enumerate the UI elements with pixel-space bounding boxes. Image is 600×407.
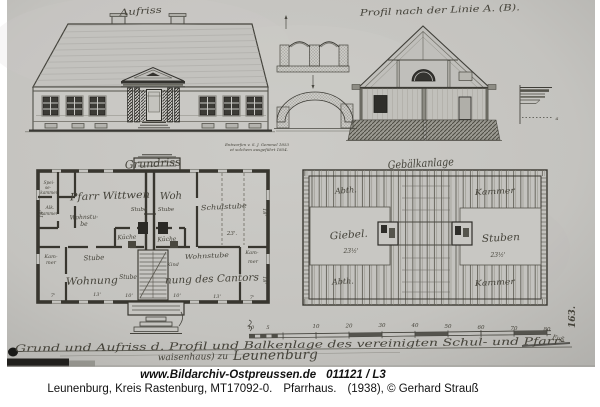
handwritten-text: 13' (213, 294, 221, 300)
archive-photo-page: AufrissEntworfen v. S. J. Gemmel 1853et … (0, 0, 600, 407)
archive-site-line: www.Bildarchiv-Ostpreussen.de011121 / L3 (0, 369, 526, 382)
handwritten-text: et solchem ausgeführt 1854. (230, 147, 288, 152)
handwritten-text: mer (248, 259, 259, 265)
handwritten-text: be (80, 221, 88, 228)
subject-text: Pfarrhaus. (283, 383, 336, 395)
handwritten-text: 50 (445, 324, 452, 330)
handwritten-text: 5 (266, 325, 269, 331)
handwritten-text: Stube (131, 207, 148, 213)
handwritten-text: Wohnung (66, 275, 118, 288)
handwritten-text: mer (46, 260, 57, 266)
handwritten-text: 7' (51, 293, 56, 299)
handwritten-text: Abth. (331, 276, 354, 286)
handwritten-text: 10' (125, 293, 133, 299)
handwritten-text: 23'. (226, 231, 238, 237)
handwritten-text: 7' (250, 295, 255, 301)
handwritten-text: Abth. (334, 185, 357, 196)
handwritten-text: 23½' (489, 252, 505, 259)
photo-meta-line: Leunenburg, Kreis Rastenburg, MT17092-0.… (0, 383, 526, 397)
handwritten-text: 80 (544, 327, 551, 333)
handwritten-text: Woh (160, 191, 182, 203)
handwritten-text: 18' (39, 210, 45, 218)
handwritten-text: kammer (40, 190, 58, 195)
handwritten-text: 30 (379, 323, 386, 329)
foundation-hatched (346, 120, 502, 141)
handwritten-text: 23½' (342, 248, 358, 255)
archive-site-url: www.Bildarchiv-Ostpreussen.de (140, 369, 316, 381)
handwritten-text: 70 (511, 326, 518, 332)
location-text: Leunenburg, Kreis Rastenburg, MT17092-0. (47, 383, 272, 395)
staircase (138, 250, 168, 300)
handwritten-text: Küche (156, 236, 177, 244)
handwritten-text: 163. (568, 306, 578, 328)
handwritten-text: 10' (173, 293, 181, 299)
handwritten-text: Kam- (244, 250, 258, 256)
handwritten-text: Leunenburg (232, 348, 318, 364)
handwritten-text: a (556, 116, 559, 122)
handwritten-text: 40 (411, 323, 419, 329)
handwritten-text: 18' (261, 276, 267, 284)
handwritten-text: Stube (119, 274, 137, 281)
image-id: 011121 / L3 (326, 369, 386, 381)
handwritten-text: 10 (313, 324, 320, 330)
handwritten-text: 60 (478, 325, 485, 331)
handwritten-text: 13' (93, 292, 101, 298)
handwritten-text: Kind (166, 262, 179, 268)
credit-text: (1938), © Gerhard Strauß (347, 383, 478, 395)
handwritten-text: 10 (248, 325, 255, 331)
handwritten-text: Stube (158, 207, 175, 213)
handwritten-text: Stube (83, 254, 104, 263)
archival-drawing-photo: AufrissEntworfen v. S. J. Gemmel 1853et … (0, 0, 600, 367)
handwritten-text: Küche (116, 234, 137, 242)
handwritten-text: Stuben (482, 232, 521, 245)
handwritten-text: 18' (261, 208, 267, 216)
handwritten-text: waisenhaus) zu (158, 351, 229, 363)
photo-caption-block: www.Bildarchiv-Ostpreussen.de011121 / L3… (0, 369, 600, 397)
handwritten-text: 20 (345, 324, 353, 330)
